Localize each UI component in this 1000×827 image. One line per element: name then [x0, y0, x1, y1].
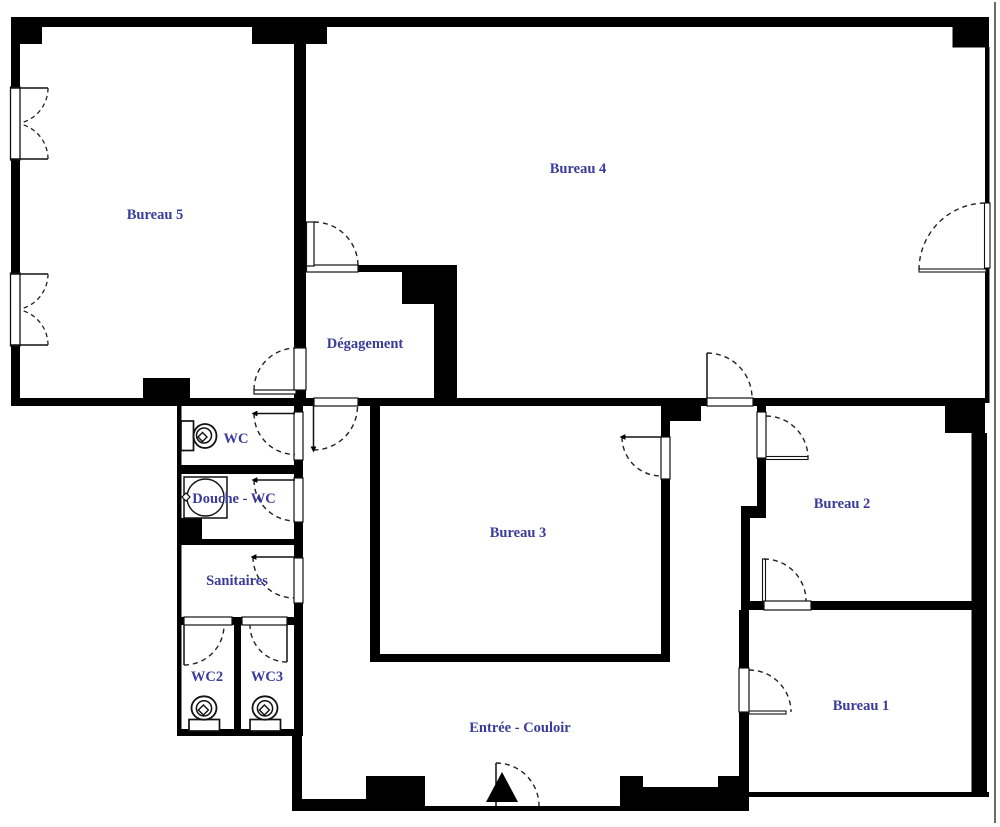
svg-text:Bureau 1: Bureau 1	[833, 698, 890, 714]
svg-text:Bureau 2: Bureau 2	[814, 496, 871, 512]
svg-text:Bureau 5: Bureau 5	[127, 207, 184, 223]
svg-text:WC3: WC3	[251, 669, 283, 685]
svg-text:Douche - WC: Douche - WC	[192, 491, 276, 507]
svg-text:Dégagement: Dégagement	[327, 336, 404, 352]
svg-text:Sanitaires: Sanitaires	[206, 573, 268, 589]
svg-text:WC2: WC2	[191, 669, 223, 685]
svg-text:Bureau 3: Bureau 3	[490, 525, 547, 541]
svg-text:Bureau 4: Bureau 4	[550, 161, 607, 177]
svg-text:WC: WC	[224, 431, 249, 447]
svg-text:Entrée - Couloir: Entrée - Couloir	[469, 720, 571, 736]
